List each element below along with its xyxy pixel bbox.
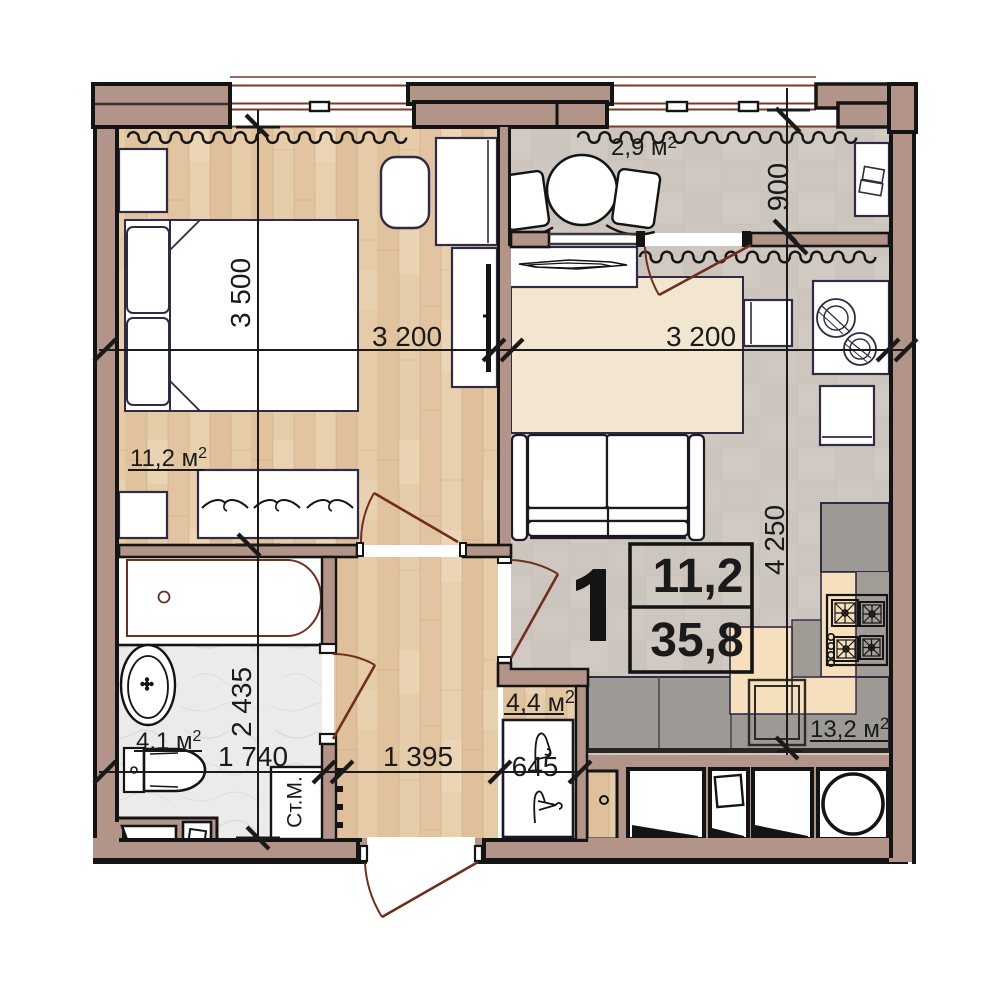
svg-text:35,8: 35,8 <box>650 614 743 667</box>
svg-text:13,2 м2: 13,2 м2 <box>810 714 889 743</box>
svg-text:645: 645 <box>512 751 559 782</box>
svg-text:3 200: 3 200 <box>666 321 736 352</box>
svg-text:2,9 м2: 2,9 м2 <box>611 133 677 161</box>
svg-text:Ст.М.: Ст.М. <box>284 776 307 828</box>
svg-text:11,2: 11,2 <box>653 550 744 603</box>
svg-text:11,2 м2: 11,2 м2 <box>130 445 207 472</box>
svg-text:2 435: 2 435 <box>226 667 257 737</box>
svg-text:1 395: 1 395 <box>383 741 453 772</box>
svg-text:900: 900 <box>763 163 795 211</box>
svg-text:4 250: 4 250 <box>759 505 790 575</box>
svg-text:3 200: 3 200 <box>372 321 442 352</box>
svg-text:4,4 м2: 4,4 м2 <box>506 687 575 717</box>
svg-text:1 740: 1 740 <box>218 741 288 772</box>
svg-text:3 500: 3 500 <box>225 258 256 328</box>
